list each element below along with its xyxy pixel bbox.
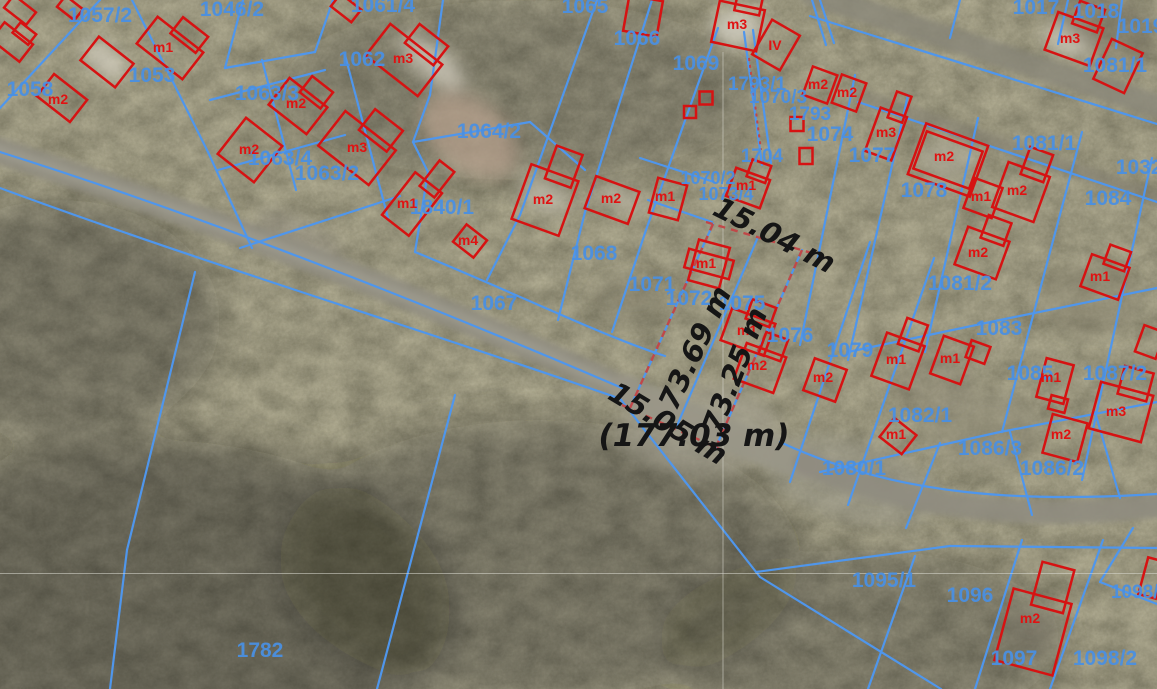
- parcel-number-label: 1068: [571, 242, 618, 265]
- parcel-number-label: 1058: [7, 78, 54, 101]
- parcel-number-label: 1069: [673, 52, 720, 75]
- building-id-label: m1: [655, 188, 675, 204]
- parcel-number-label: 1061/4: [351, 0, 416, 17]
- building-id-label: m2: [601, 190, 621, 206]
- parcel-number-label: 1076: [767, 324, 814, 347]
- parcel-number-label: 1096: [947, 584, 994, 607]
- building-id-label: IV: [768, 37, 782, 53]
- parcel-number-label: 1062: [339, 48, 386, 71]
- measurement-distance-label: (177.03 m): [598, 418, 789, 454]
- building-id-label: m2: [1020, 610, 1040, 626]
- parcel-number-label: 1793: [789, 104, 831, 125]
- building-id-label: m3: [1060, 30, 1080, 46]
- parcel-number-label: 1017: [1013, 0, 1060, 19]
- building-id-label: m1: [1041, 369, 1061, 385]
- parcel-number-label: 1087/2: [1083, 362, 1147, 385]
- building-id-label: m2: [48, 91, 68, 107]
- building-id-label: m2: [533, 191, 553, 207]
- building-id-label: m2: [286, 95, 306, 111]
- parcel-number-label: 1066: [614, 27, 661, 50]
- parcel-number-label: 1095/1: [852, 569, 917, 592]
- parcel-number-label: 1078: [901, 179, 948, 202]
- parcel-number-label: 1098/1: [1111, 582, 1157, 603]
- building-id-label: m1: [696, 255, 716, 271]
- parcel-number-label: 1080/1: [822, 457, 887, 480]
- parcel-number-label: 1057/2: [68, 4, 132, 27]
- parcel-number-label: 1074: [807, 123, 854, 146]
- parcel-number-label: 1018: [1073, 0, 1120, 23]
- building-id-label: m2: [813, 369, 833, 385]
- building-id-label: m1: [736, 177, 756, 193]
- parcel-number-label: 1053: [129, 64, 176, 87]
- parcel-number-label: 1077: [849, 144, 896, 167]
- building-id-label: m3: [1106, 403, 1126, 419]
- parcel-number-label: 1064/2: [457, 120, 521, 143]
- parcel-number-label: 1083: [976, 317, 1023, 340]
- building-id-label: m1: [397, 195, 417, 211]
- parcel-number-label: 1084: [1085, 187, 1132, 210]
- building-id-label: m2: [837, 84, 857, 100]
- parcel-number-label: 1065: [562, 0, 609, 18]
- building-id-label: m3: [393, 50, 413, 66]
- map-canvas[interactable]: 1057/21046/21061/41065106610691017101810…: [0, 0, 1157, 689]
- cadastral-map-viewport[interactable]: 1057/21046/21061/41065106610691017101810…: [0, 0, 1157, 689]
- parcel-number-label: 1840/1: [410, 196, 475, 219]
- building-id-label: m2: [239, 141, 259, 157]
- parcel-number-label: 1019: [1118, 15, 1157, 38]
- parcel-number-label: 1086/2: [1020, 457, 1084, 480]
- parcel-number-label: 1079: [827, 339, 874, 362]
- building-id-label: m2: [968, 244, 988, 260]
- parcel-number-label: 1097: [991, 647, 1038, 670]
- building-id-label: m1: [971, 188, 991, 204]
- parcel-number-label: 1063/2: [295, 162, 359, 185]
- parcel-number-label: 1082/1: [888, 404, 953, 427]
- building-id-label: m3: [876, 124, 896, 140]
- parcel-number-label: 1704: [741, 146, 784, 167]
- building-id-label: m4: [458, 232, 478, 248]
- building-id-label: m1: [1090, 268, 1110, 284]
- parcel-number-label: 1032/1: [1116, 156, 1157, 179]
- building-id-label: m3: [727, 16, 747, 32]
- building-id-label: m3: [347, 139, 367, 155]
- building-id-label: m2: [1007, 182, 1027, 198]
- parcel-number-label: 1086/3: [958, 437, 1022, 460]
- building-id-label: m2: [808, 76, 828, 92]
- building-id-label: m2: [1051, 426, 1071, 442]
- building-id-label: m1: [886, 351, 906, 367]
- parcel-number-label: 1782: [237, 639, 284, 662]
- parcel-number-label: 1098/2: [1073, 647, 1137, 670]
- parcel-number-label: 1081/1: [1012, 132, 1077, 155]
- building-id-label: m2: [934, 148, 954, 164]
- parcel-number-label: 1081/1: [1083, 54, 1148, 77]
- parcel-number-label: 1046/2: [200, 0, 264, 21]
- parcel-number-label: 1081/2: [928, 272, 992, 295]
- parcel-number-label: 1067: [471, 292, 518, 315]
- building-id-label: m1: [153, 39, 173, 55]
- building-id-label: m1: [886, 426, 906, 442]
- building-id-label: m1: [940, 350, 960, 366]
